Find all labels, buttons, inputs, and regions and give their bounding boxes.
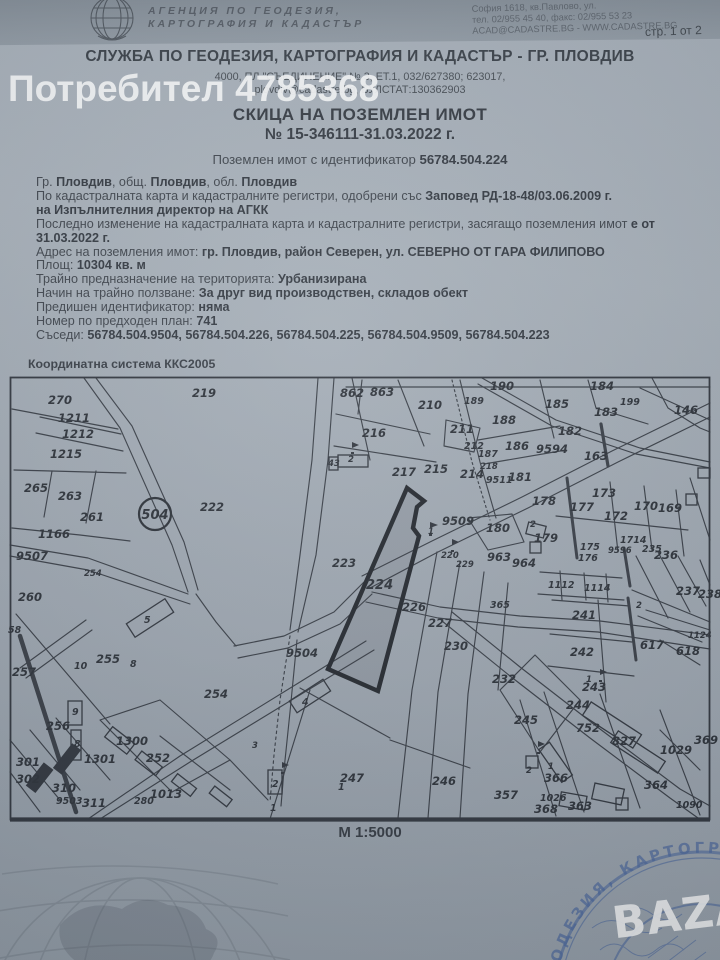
parcel-label-179: 179 xyxy=(534,531,558,545)
parcel-label-219: 219 xyxy=(192,386,216,400)
parcel-label-963: 963 xyxy=(487,550,511,564)
parcel-label-265: 265 xyxy=(24,481,48,495)
parcel-label-827: 827 xyxy=(612,734,636,748)
parcel-label-280: 280 xyxy=(134,796,154,807)
parcel-label-186: 186 xyxy=(505,439,529,453)
parcel-label-618: 618 xyxy=(676,644,700,658)
parcel-label-184: 184 xyxy=(590,379,614,393)
parcel-label-175: 175 xyxy=(580,542,600,553)
parcel-label-1114: 1114 xyxy=(584,583,611,594)
parcel-label-232: 232 xyxy=(492,672,516,686)
parcel-label-215: 215 xyxy=(424,462,448,476)
parcel-label-302: 302 xyxy=(16,772,40,786)
parcel-label-3: 3 xyxy=(252,741,258,751)
parcel-label-180: 180 xyxy=(486,521,510,535)
parcel-label-1215: 1215 xyxy=(50,447,82,461)
parcel-label-224: 224 xyxy=(366,578,393,593)
parcel-label-1: 1 xyxy=(338,782,345,793)
parcel-label-223: 223 xyxy=(332,556,356,570)
parcel-label-1013: 1013 xyxy=(150,787,182,801)
parcel-label-255: 255 xyxy=(96,652,120,666)
parcel-label-181: 181 xyxy=(508,470,532,484)
parcel-label-176: 176 xyxy=(578,553,598,564)
parcel-label-368: 368 xyxy=(534,802,558,816)
agency-globe-logo xyxy=(84,0,144,42)
parcel-label-189: 189 xyxy=(464,396,484,407)
parcel-label-9503: 9503 xyxy=(56,796,83,807)
parcel-label-364: 364 xyxy=(644,778,668,792)
parcel-label-242: 242 xyxy=(570,645,594,659)
parcel-label-9596: 9596 xyxy=(608,546,632,556)
parcel-label-252: 252 xyxy=(146,751,170,765)
parcel-label-1211: 1211 xyxy=(58,411,90,425)
parcel-label-237: 237 xyxy=(676,584,700,598)
parcel-label-9594: 9594 xyxy=(536,442,568,456)
parcel-label-256: 256 xyxy=(46,719,70,733)
parcel-label-9: 9 xyxy=(72,707,79,718)
parcel-label-369: 369 xyxy=(694,733,718,747)
parcel-label-58: 58 xyxy=(8,625,22,636)
parcel-label-2: 2 xyxy=(348,455,354,465)
parcel-label-2: 2 xyxy=(526,766,532,776)
parcel-label-9504: 9504 xyxy=(286,646,318,660)
quarter-504-label: 504 xyxy=(141,508,168,523)
parcel-label-4: 4 xyxy=(301,697,309,708)
parcel-label-246: 246 xyxy=(432,774,456,788)
parcel-label-185: 185 xyxy=(545,397,569,411)
parcel-label-1: 1 xyxy=(586,675,592,685)
parcel-label-617: 617 xyxy=(640,638,664,652)
parcel-label-172: 172 xyxy=(604,509,628,523)
parcel-label-170: 170 xyxy=(634,499,658,513)
parcel-label-862: 862 xyxy=(340,386,364,400)
parcel-label-1: 1 xyxy=(270,803,277,814)
parcel-label-366: 366 xyxy=(544,771,568,785)
parcel-label-1090: 1090 xyxy=(676,800,703,811)
parcel-label-752: 752 xyxy=(576,721,600,735)
parcel-label-43: 43 xyxy=(327,459,340,469)
parcel-label-1029: 1029 xyxy=(660,743,692,757)
parcel-label-1: 1 xyxy=(428,527,434,537)
parcel-label-261: 261 xyxy=(80,510,104,524)
parcel-label-177: 177 xyxy=(570,500,594,514)
parcel-label-226: 226 xyxy=(402,600,426,614)
parcel-label-211: 211 xyxy=(450,422,474,436)
parcel-label-244: 244 xyxy=(566,698,590,712)
parcel-label-245: 245 xyxy=(514,713,538,727)
parcel-label-1212: 1212 xyxy=(62,427,94,441)
parcel-label-10: 10 xyxy=(74,661,88,672)
parcel-label-254: 254 xyxy=(84,569,102,579)
parcel-label-187: 187 xyxy=(478,449,498,460)
parcel-label-8: 8 xyxy=(74,739,81,750)
parcel-label-9509: 9509 xyxy=(442,514,474,528)
parcel-label-8: 8 xyxy=(130,659,137,670)
parcel-label-178: 178 xyxy=(532,494,556,508)
parcel-label-1301: 1301 xyxy=(84,752,116,766)
cadastral-map: 504 270121112121215265263261116695072605… xyxy=(0,0,720,960)
parcel-label-310: 310 xyxy=(52,781,76,795)
parcel-label-863: 863 xyxy=(370,385,394,399)
quarter-504-badge: 504 xyxy=(139,498,171,530)
parcel-label-229: 229 xyxy=(456,560,474,570)
parcel-label-311: 311 xyxy=(82,796,106,810)
parcel-label-270: 270 xyxy=(48,393,72,407)
parcel-label-1300: 1300 xyxy=(116,734,148,748)
parcel-label-146: 146 xyxy=(674,403,698,417)
parcel-label-173: 173 xyxy=(592,486,616,500)
parcel-label-163: 163 xyxy=(584,449,608,463)
parcel-label-210: 210 xyxy=(418,398,442,412)
parcel-label-188: 188 xyxy=(492,413,516,427)
parcel-label-227: 227 xyxy=(428,616,452,630)
parcel-label-2: 2 xyxy=(636,601,642,611)
parcel-label-236: 236 xyxy=(654,548,678,562)
user-watermark: Потребител 4785368 xyxy=(8,68,379,110)
parcel-label-230: 230 xyxy=(444,639,468,653)
parcel-label-365: 365 xyxy=(490,600,510,611)
parcel-label-217: 217 xyxy=(392,465,416,479)
parcel-label-1166: 1166 xyxy=(38,527,70,541)
parcel-label-216: 216 xyxy=(362,426,386,440)
parcel-label-1124: 1124 xyxy=(688,631,712,641)
parcel-label-254: 254 xyxy=(204,687,228,701)
parcel-label-357: 357 xyxy=(494,788,518,802)
parcel-label-263: 263 xyxy=(58,489,82,503)
parcel-label-301: 301 xyxy=(16,755,40,769)
parcel-label-2: 2 xyxy=(530,520,536,530)
parcel-label-1026: 1026 xyxy=(540,793,567,804)
parcel-label-1: 1 xyxy=(548,762,554,772)
parcel-label-9507: 9507 xyxy=(16,549,48,563)
parcel-label-363: 363 xyxy=(568,799,592,813)
parcel-label-1112: 1112 xyxy=(548,580,575,591)
parcel-label-964: 964 xyxy=(512,556,536,570)
parcel-label-169: 169 xyxy=(658,501,682,515)
parcel-label-241: 241 xyxy=(572,608,596,622)
document-photo: АГЕНЦИЯ ПО ГЕОДЕЗИЯ, КАРТОГРАФИЯ И КАДАС… xyxy=(0,0,720,960)
parcel-label-222: 222 xyxy=(200,500,224,514)
globe-watermark-stamp xyxy=(0,866,292,960)
parcel-label-199: 199 xyxy=(620,397,640,408)
parcel-label-183: 183 xyxy=(594,405,618,419)
parcel-label-238: 238 xyxy=(698,587,720,601)
parcel-label-257: 257 xyxy=(12,665,36,679)
parcel-label-260: 260 xyxy=(18,590,42,604)
parcel-label-182: 182 xyxy=(558,424,582,438)
parcel-label-2: 2 xyxy=(272,779,279,790)
parcel-label-214: 214 xyxy=(460,467,484,481)
parcel-label-5: 5 xyxy=(144,615,151,626)
parcel-label-190: 190 xyxy=(490,379,514,393)
